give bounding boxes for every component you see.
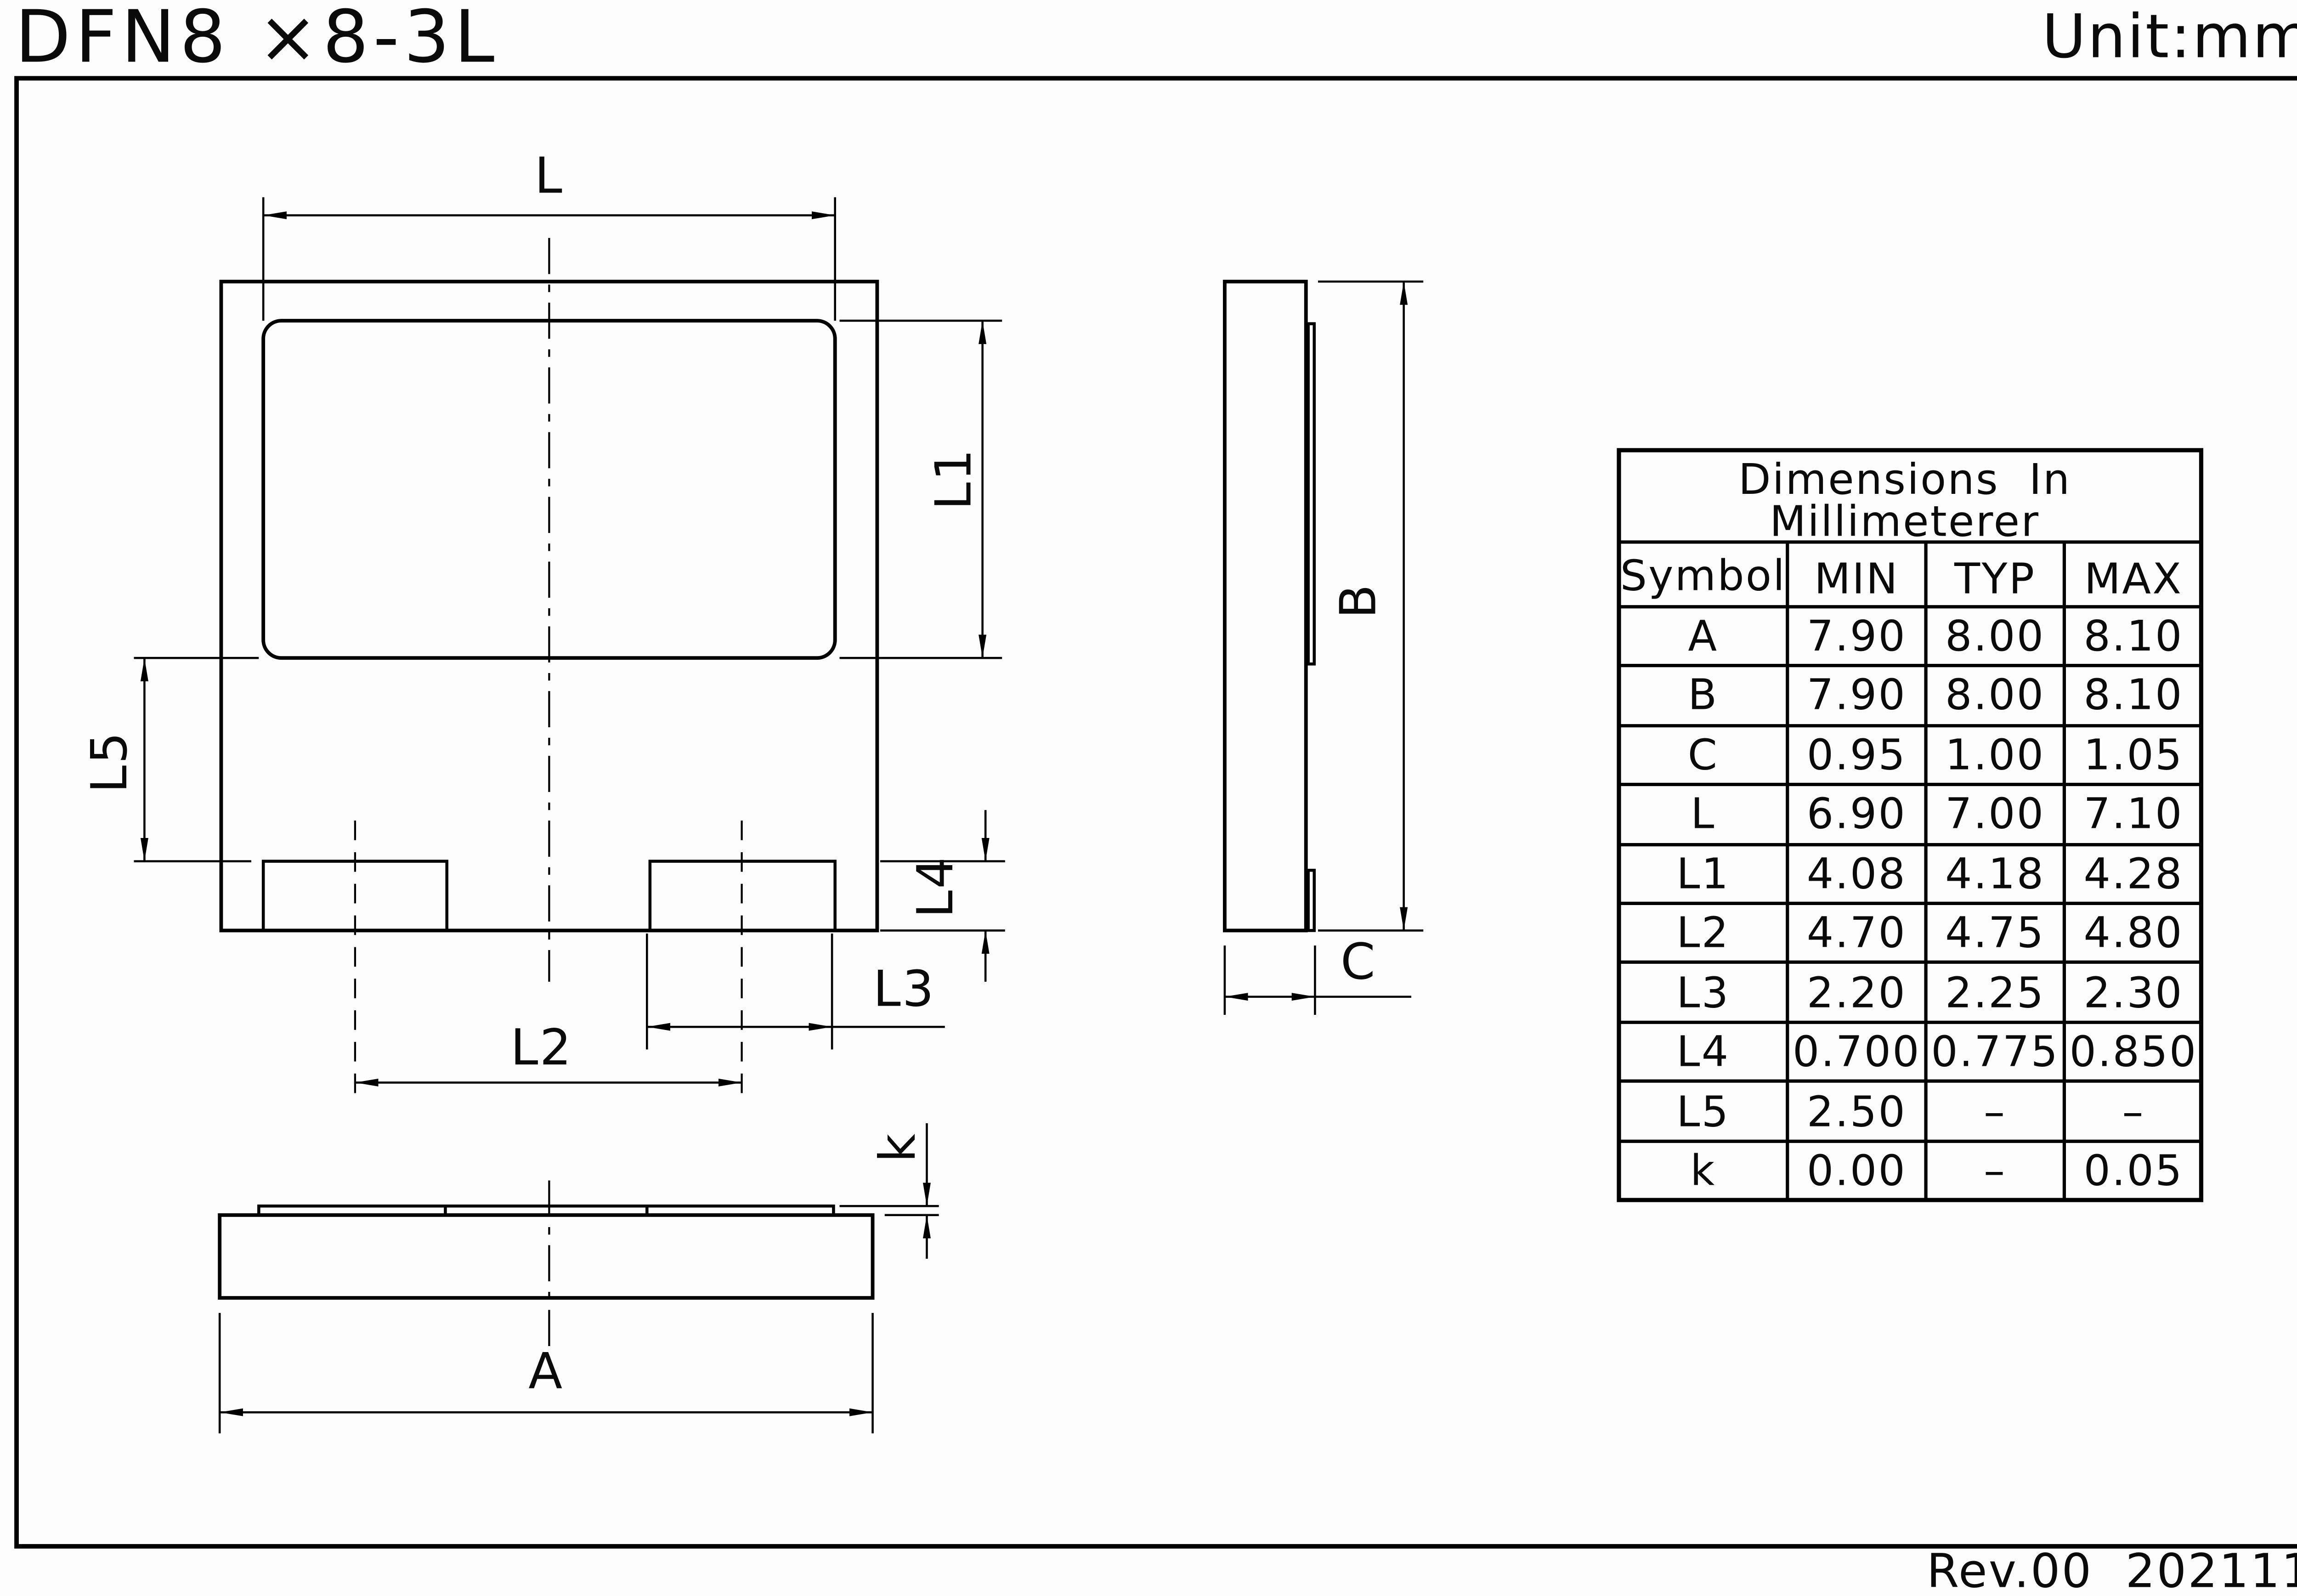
cell-symbol: A — [1688, 611, 1718, 661]
cell-max: 8.10 — [2083, 611, 2183, 661]
table-row: k 0.00 – 0.05 — [1690, 1146, 2183, 1195]
cell-min: 0.95 — [1807, 730, 1907, 780]
dim-label-L2: L2 — [510, 1019, 573, 1076]
cell-symbol: L4 — [1676, 1027, 1730, 1076]
cell-min: 7.90 — [1807, 611, 1907, 661]
cell-typ: 8.00 — [1945, 670, 2045, 719]
table-header-max: MAX — [2084, 554, 2183, 603]
table-row: L5 2.50 – – — [1676, 1087, 2144, 1136]
cell-typ: 0.775 — [1931, 1027, 2059, 1076]
cell-typ: 2.25 — [1945, 968, 2045, 1018]
cell-min: 6.90 — [1807, 789, 1907, 838]
cell-typ: 1.00 — [1945, 730, 2045, 780]
dim-label-A: A — [528, 1343, 564, 1400]
cell-symbol: L5 — [1676, 1087, 1730, 1136]
dim-label-B: B — [1330, 583, 1387, 618]
cell-min: 2.50 — [1807, 1087, 1907, 1136]
dim-label-k: k — [869, 1132, 927, 1162]
cell-typ: 4.75 — [1945, 908, 2045, 957]
dim-label-L1: L1 — [925, 447, 982, 510]
page-title: DFN8 ×8-3L — [15, 0, 499, 79]
cell-max: 2.30 — [2083, 968, 2183, 1018]
table-row: L3 2.20 2.25 2.30 — [1676, 968, 2183, 1018]
revision-label: Rev.00 202111 — [1927, 1544, 2297, 1596]
table-header-symbol: Symbol — [1620, 551, 1786, 600]
table-header-min: MIN — [1814, 554, 1899, 603]
front-body-outline — [220, 1215, 872, 1298]
cell-max: 0.05 — [2083, 1146, 2183, 1195]
cell-typ: 8.00 — [1945, 611, 2045, 661]
dim-label-L: L — [535, 147, 564, 204]
cell-max: 0.850 — [2070, 1027, 2198, 1076]
cell-min: 4.08 — [1807, 849, 1907, 899]
front-lead-layer — [259, 1206, 833, 1215]
cell-min: 0.00 — [1807, 1146, 1907, 1195]
dim-label-C: C — [1341, 933, 1377, 990]
unit-label: Unit:mm — [2042, 1, 2297, 71]
cell-min: 2.20 — [1807, 968, 1907, 1018]
cell-max: 4.80 — [2083, 908, 2183, 957]
cell-min: 7.90 — [1807, 670, 1907, 719]
side-pin-pad-strip — [1308, 870, 1314, 930]
dim-label-L3: L3 — [873, 960, 936, 1018]
table-row: A 7.90 8.00 8.10 — [1688, 611, 2183, 661]
dim-label-L5: L5 — [81, 731, 138, 793]
cell-typ: 7.00 — [1945, 789, 2045, 838]
cell-symbol: k — [1690, 1146, 1716, 1195]
cell-min: 4.70 — [1807, 908, 1907, 957]
cell-max: 7.10 — [2083, 789, 2183, 838]
cell-typ: – — [1984, 1087, 2006, 1136]
cell-max: 8.10 — [2083, 670, 2183, 719]
cell-symbol: L3 — [1676, 968, 1730, 1018]
table-header-typ: TYP — [1954, 554, 2036, 603]
table-row: L2 4.70 4.75 4.80 — [1676, 908, 2183, 957]
drawing-sheet: DFN8 ×8-3L Unit:mm Rev.00 202111 L L1 L5 — [0, 0, 2297, 1596]
cell-symbol: L2 — [1676, 908, 1730, 957]
cell-typ: 4.18 — [1945, 849, 2045, 899]
front-view: k A — [220, 1123, 939, 1433]
cell-symbol: B — [1688, 670, 1718, 719]
table-row: L1 4.08 4.18 4.28 — [1676, 849, 2183, 899]
cell-max: 4.28 — [2083, 849, 2183, 899]
cell-symbol: L — [1691, 789, 1715, 838]
cell-typ: – — [1984, 1146, 2006, 1195]
top-view: L L1 L5 L4 L3 L2 — [81, 147, 1005, 1364]
cell-max: – — [2122, 1087, 2145, 1136]
table-row: L 6.90 7.00 7.10 — [1691, 789, 2183, 838]
side-view: B C — [1225, 282, 1423, 1015]
dimensions-table: Dimensions In Millimeterer Symbol MIN TY… — [1619, 450, 2201, 1200]
table-row: B 7.90 8.00 8.10 — [1688, 670, 2183, 719]
cell-symbol: L1 — [1676, 849, 1730, 899]
table-title-line2: Millimeterer — [1770, 497, 2040, 546]
cell-max: 1.05 — [2083, 730, 2183, 780]
table-row: C 0.95 1.00 1.05 — [1688, 730, 2184, 780]
cell-symbol: C — [1688, 730, 1719, 780]
table-row: L4 0.700 0.775 0.850 — [1676, 1027, 2197, 1076]
dim-label-L4: L4 — [907, 856, 964, 918]
cell-min: 0.700 — [1793, 1027, 1921, 1076]
side-body-outline — [1225, 282, 1306, 931]
side-exposed-pad-strip — [1308, 324, 1314, 664]
